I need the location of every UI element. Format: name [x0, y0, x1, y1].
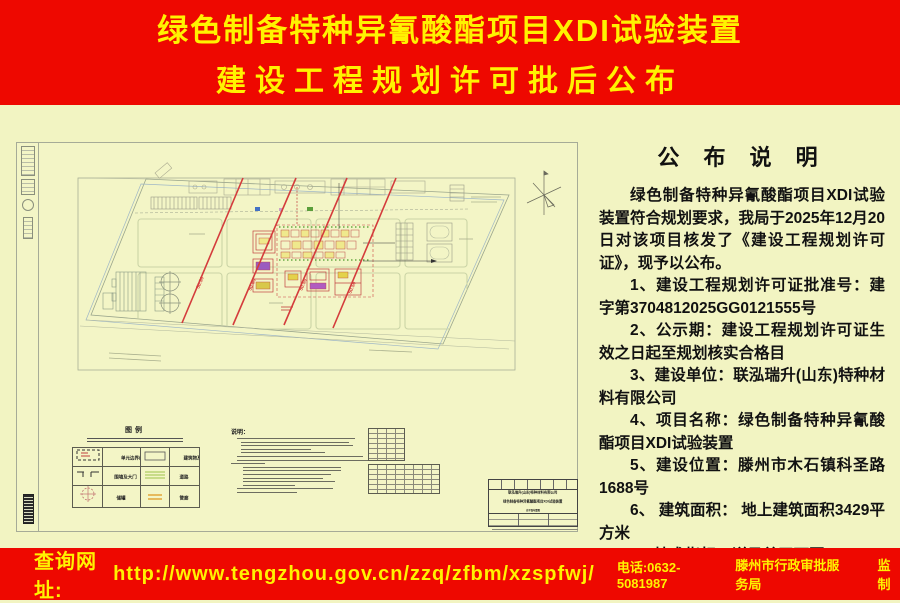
poster-title-line2: 建设工程规划许可批后公布 [216, 56, 684, 100]
legend-title: 图例 [72, 425, 198, 435]
site-plan-sheet: 50.50 50.50 50.50 50.50 [16, 142, 578, 532]
title-block-company: 联泓瑞升(山东)特种材料有限公司 [508, 491, 557, 495]
legend-underline-2 [87, 441, 183, 442]
header-banner: 绿色制备特种异氰酸酯项目XDI试验装置 建设工程规划许可批后公布 [0, 0, 900, 105]
left-utility-area [103, 272, 164, 311]
announcement-item-3: 3、建设单位：联泓瑞升(山东)特种材料有限公司 [599, 365, 885, 410]
footer-url-label: 查询网址: [34, 545, 113, 603]
legend-label-building: 建筑物及栋号 [184, 454, 200, 461]
right-basins [396, 223, 452, 262]
sheet-stamp-text [23, 217, 33, 239]
footer-phone: 电话:0632-5081987 [617, 557, 716, 591]
tank-circle-icon [79, 486, 97, 502]
announcement-item-1: 1、建设工程规划许可证批准号：建字第3704812025GG0121555号 [599, 275, 885, 320]
wall-gate-icon [76, 468, 100, 480]
title-block-note-line [492, 529, 578, 530]
announcement-item-4: 4、项目名称：绿色制备特种异氰酸酯项目XDI试验装置 [599, 410, 885, 455]
announcement-item-6: 6、 建筑面积： 地上建筑面积3429平方米 [599, 500, 885, 545]
announcement-poster: 绿色制备特种异氰酸酯项目XDI试验装置 建设工程规划许可批后公布 [0, 0, 900, 600]
legend-symbol-gate [73, 467, 103, 486]
footer-url: http://www.tengzhou.gov.cn/zzq/zfbm/xzsp… [113, 563, 595, 586]
legend-symbol-building [141, 448, 170, 467]
sheet-stamp-small [21, 179, 35, 195]
legend-label-road: 道路 [180, 473, 189, 480]
notes-block: 说明： [231, 427, 369, 496]
svg-text:50.50: 50.50 [195, 276, 205, 290]
dashed-boundary-icon [76, 449, 100, 461]
legend-label-piperack: 管廊 [180, 494, 189, 501]
title-block-header-row [489, 480, 577, 490]
legend-underline-1 [87, 438, 183, 439]
footer-supervision: 监制 [878, 555, 900, 593]
archive-stamp [23, 494, 34, 524]
legend-symbol-boundary [73, 448, 103, 467]
red-line-labels: 50.50 50.50 50.50 50.50 [195, 276, 357, 295]
indicator-table-1 [368, 428, 405, 461]
announcement-intro: 绿色制备特种异氰酸酯项目XDI试验装置符合规划要求，我局于2025年12月20日… [599, 185, 885, 275]
legend-symbol-piperack [141, 486, 170, 508]
hatched-buildings [151, 185, 464, 209]
footer-org: 滕州市行政审批服务局 [735, 555, 847, 593]
legend-table: 单元边界线及名称 建筑物及栋号 围墙及大门 [72, 447, 200, 508]
building-rect-icon [144, 451, 166, 461]
storage-tanks [159, 271, 181, 314]
footer-bar: 查询网址: http://www.tengzhou.gov.cn/zzq/zfb… [0, 548, 900, 600]
legend-symbol-road [141, 467, 170, 486]
title-block-footer-row [489, 514, 577, 526]
pipe-rack-icon [147, 493, 163, 501]
legend-label-tank: 储罐 [117, 494, 126, 501]
indicator-table-2 [368, 464, 440, 494]
road-lines-icon [144, 470, 166, 480]
north-compass-icon [527, 171, 561, 215]
legend-label-gate: 围墙及大门 [114, 473, 137, 480]
title-block: 联泓瑞升(山东)特种材料有限公司 绿色制备特种异氰酸酯项目XDI试验装置 总平面… [488, 479, 578, 527]
title-block-drawing-name: 总平面布置图 [526, 509, 540, 511]
title-block-project: 绿色制备特种异氰酸酯项目XDI试验装置 [503, 500, 562, 504]
announcement-item-2: 2、公示期：建设工程规划许可证生效之日起至规划核实合格目 [599, 320, 885, 365]
legend-symbol-tank [73, 486, 103, 508]
poster-title-line1: 绿色制备特种异氰酸酯项目XDI试验装置 [157, 5, 743, 50]
announcement-item-5: 5、建设位置：滕州市木石镇科圣路1688号 [599, 455, 885, 500]
plant-cluster [253, 183, 437, 310]
title-block-names: 联泓瑞升(山东)特种材料有限公司 绿色制备特种异氰酸酯项目XDI试验装置 总平面… [489, 490, 577, 514]
site-boundary [78, 178, 515, 349]
announcement-panel: 公 布 说 明 绿色制备特种异氰酸酯项目XDI试验装置符合规划要求，我局于202… [599, 140, 885, 568]
announcement-title: 公 布 说 明 [599, 140, 885, 172]
internal-roads [135, 209, 469, 329]
notes-title: 说明： [231, 427, 369, 436]
sheet-seal-circle [22, 199, 34, 211]
legend-label-boundary: 单元边界线及名称 [121, 454, 140, 461]
sheet-stamp-top [21, 146, 35, 176]
sheet-binding-strip [17, 143, 39, 531]
